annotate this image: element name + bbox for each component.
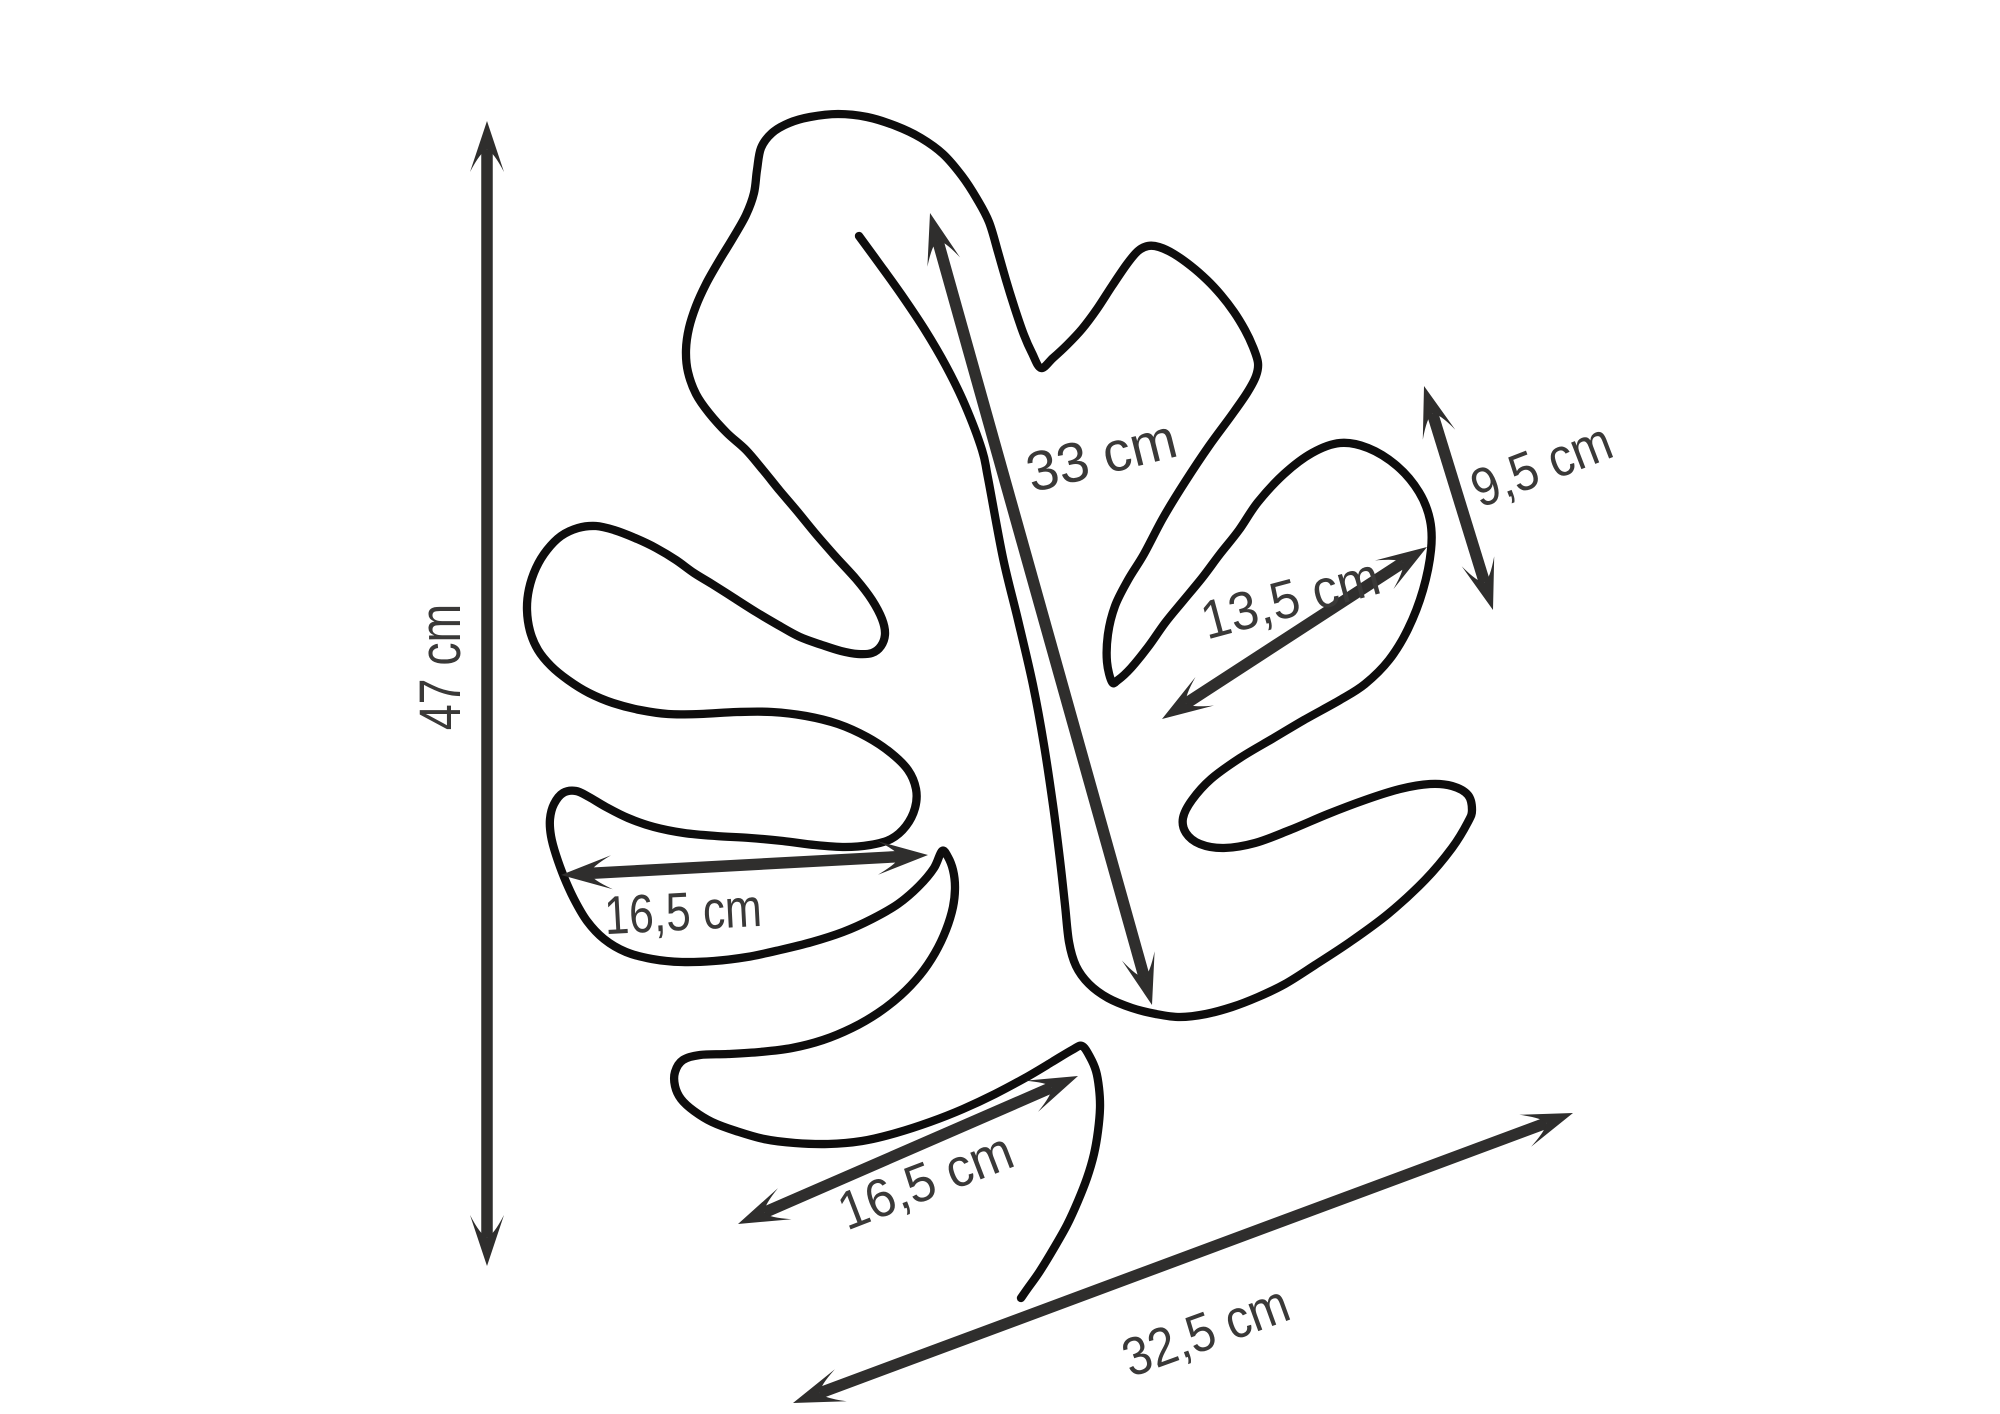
svg-text:32,5 cm: 32,5 cm	[1114, 1272, 1297, 1388]
svg-text:16,5 cm: 16,5 cm	[603, 878, 763, 946]
svg-text:9,5 cm: 9,5 cm	[1462, 410, 1620, 519]
svg-text:33 cm: 33 cm	[1020, 406, 1183, 504]
svg-text:47 cm: 47 cm	[408, 604, 473, 730]
